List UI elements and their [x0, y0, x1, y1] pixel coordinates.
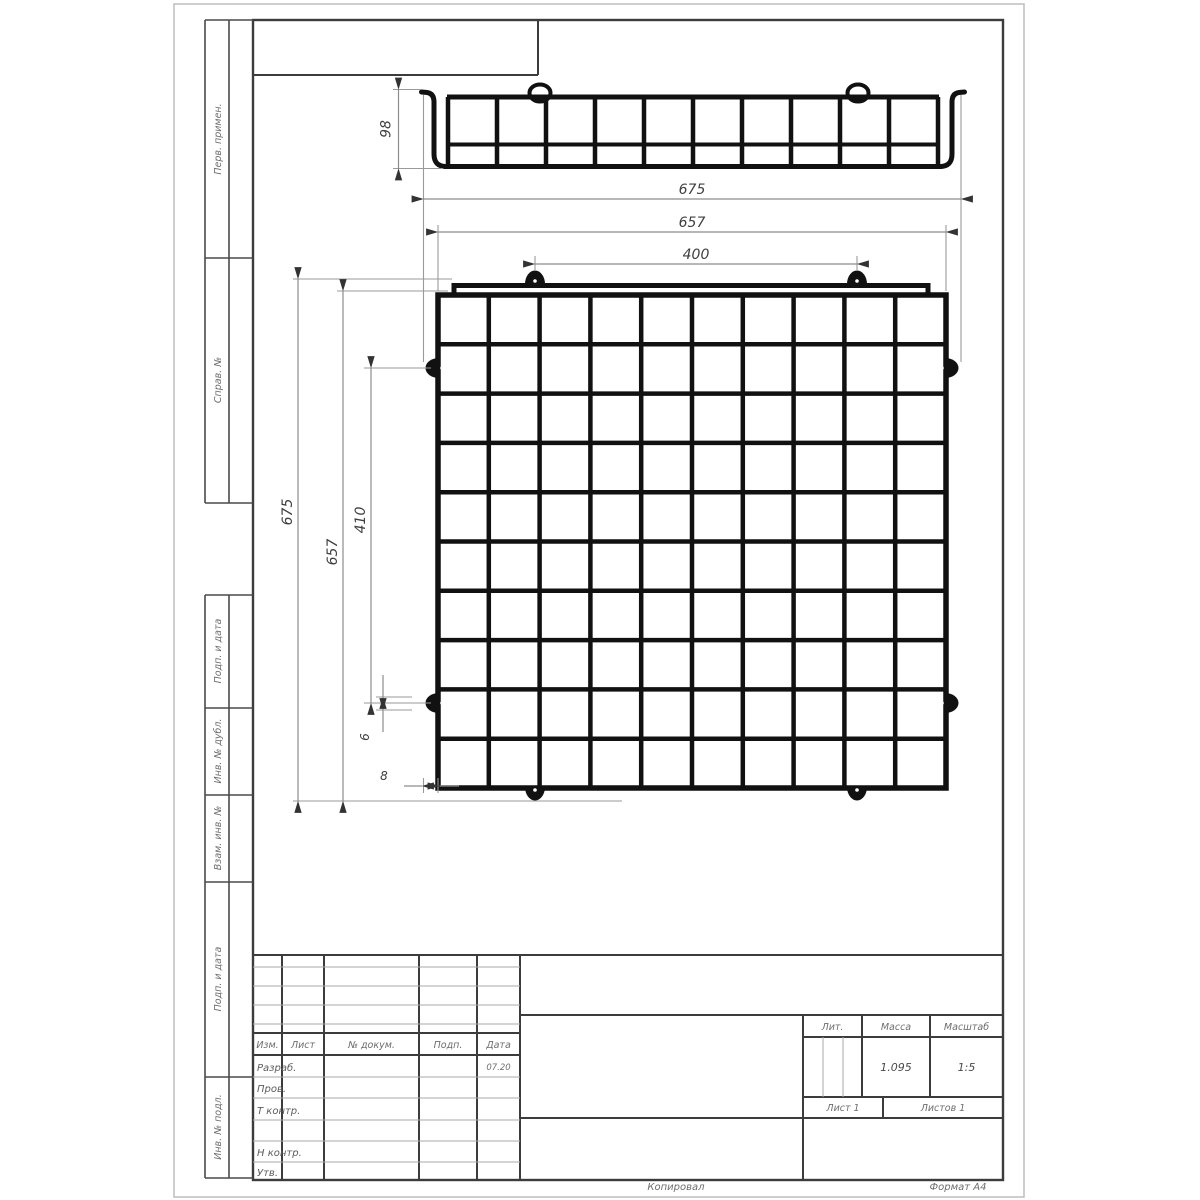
strip-label-vzam-inv: Взам. инв. № [213, 806, 224, 871]
dim-mesh-width: 657 [679, 215, 706, 231]
strip-label-inv-podl: Инв. № подл. [213, 1094, 224, 1160]
footer-format-label: Формат А4 [930, 1182, 987, 1193]
tb-sheet-label: Лист 1 [825, 1103, 859, 1114]
footer-copied-label: Копировал [647, 1182, 705, 1193]
dim-mesh-height: 657 [325, 539, 341, 566]
strip-label-podp-data-2: Подп. и дата [213, 946, 224, 1011]
drawing-canvas: Перв. примен. Справ. № Подп. и дата Инв.… [0, 0, 1200, 1200]
strip-label-sprav-no: Справ. № [213, 357, 224, 403]
tb-row-prov: Пров. [257, 1084, 286, 1095]
tb-scale-label: Масштаб [944, 1022, 989, 1033]
tb-row-razrab: Разраб. [257, 1062, 296, 1074]
strip-label-inv-dubl: Инв. № дубл. [213, 719, 224, 784]
dim-wire-dia: 6 [358, 733, 372, 741]
strip-label-podp-data-1: Подп. и дата [213, 618, 224, 683]
dim-side-height: 98 [379, 120, 395, 138]
tb-razrab-date: 07.20 [486, 1063, 510, 1073]
tb-row-nkontr: Н контр. [257, 1148, 302, 1159]
tb-scale-value: 1:5 [958, 1061, 976, 1074]
tb-col-docnum: № докум. [347, 1040, 395, 1051]
dim-overall-width: 675 [679, 182, 706, 198]
tb-col-izm: Изм. [256, 1040, 278, 1051]
dim-clip-span-v: 410 [353, 507, 369, 534]
tb-col-podp: Подп. [434, 1040, 463, 1051]
tb-sheets-label: Листов 1 [920, 1103, 966, 1114]
tb-mass-label: Масса [881, 1022, 911, 1033]
tb-mass-value: 1.095 [880, 1061, 912, 1074]
dim-overall-height: 675 [280, 499, 296, 526]
tb-row-tkontr: Т контр. [257, 1106, 300, 1117]
tb-col-list: Лист [290, 1040, 316, 1051]
dim-edge-offset: 8 [380, 769, 388, 783]
tb-col-data: Дата [485, 1040, 511, 1051]
strip-label-perv-primen: Перв. примен. [213, 103, 224, 174]
dim-clip-span-h: 400 [683, 247, 710, 263]
tb-row-utv: Утв. [257, 1168, 278, 1179]
tb-lit-label: Лит. [821, 1022, 844, 1033]
drawing-sheet-page: Перв. примен. Справ. № Подп. и дата Инв.… [0, 0, 1200, 1200]
